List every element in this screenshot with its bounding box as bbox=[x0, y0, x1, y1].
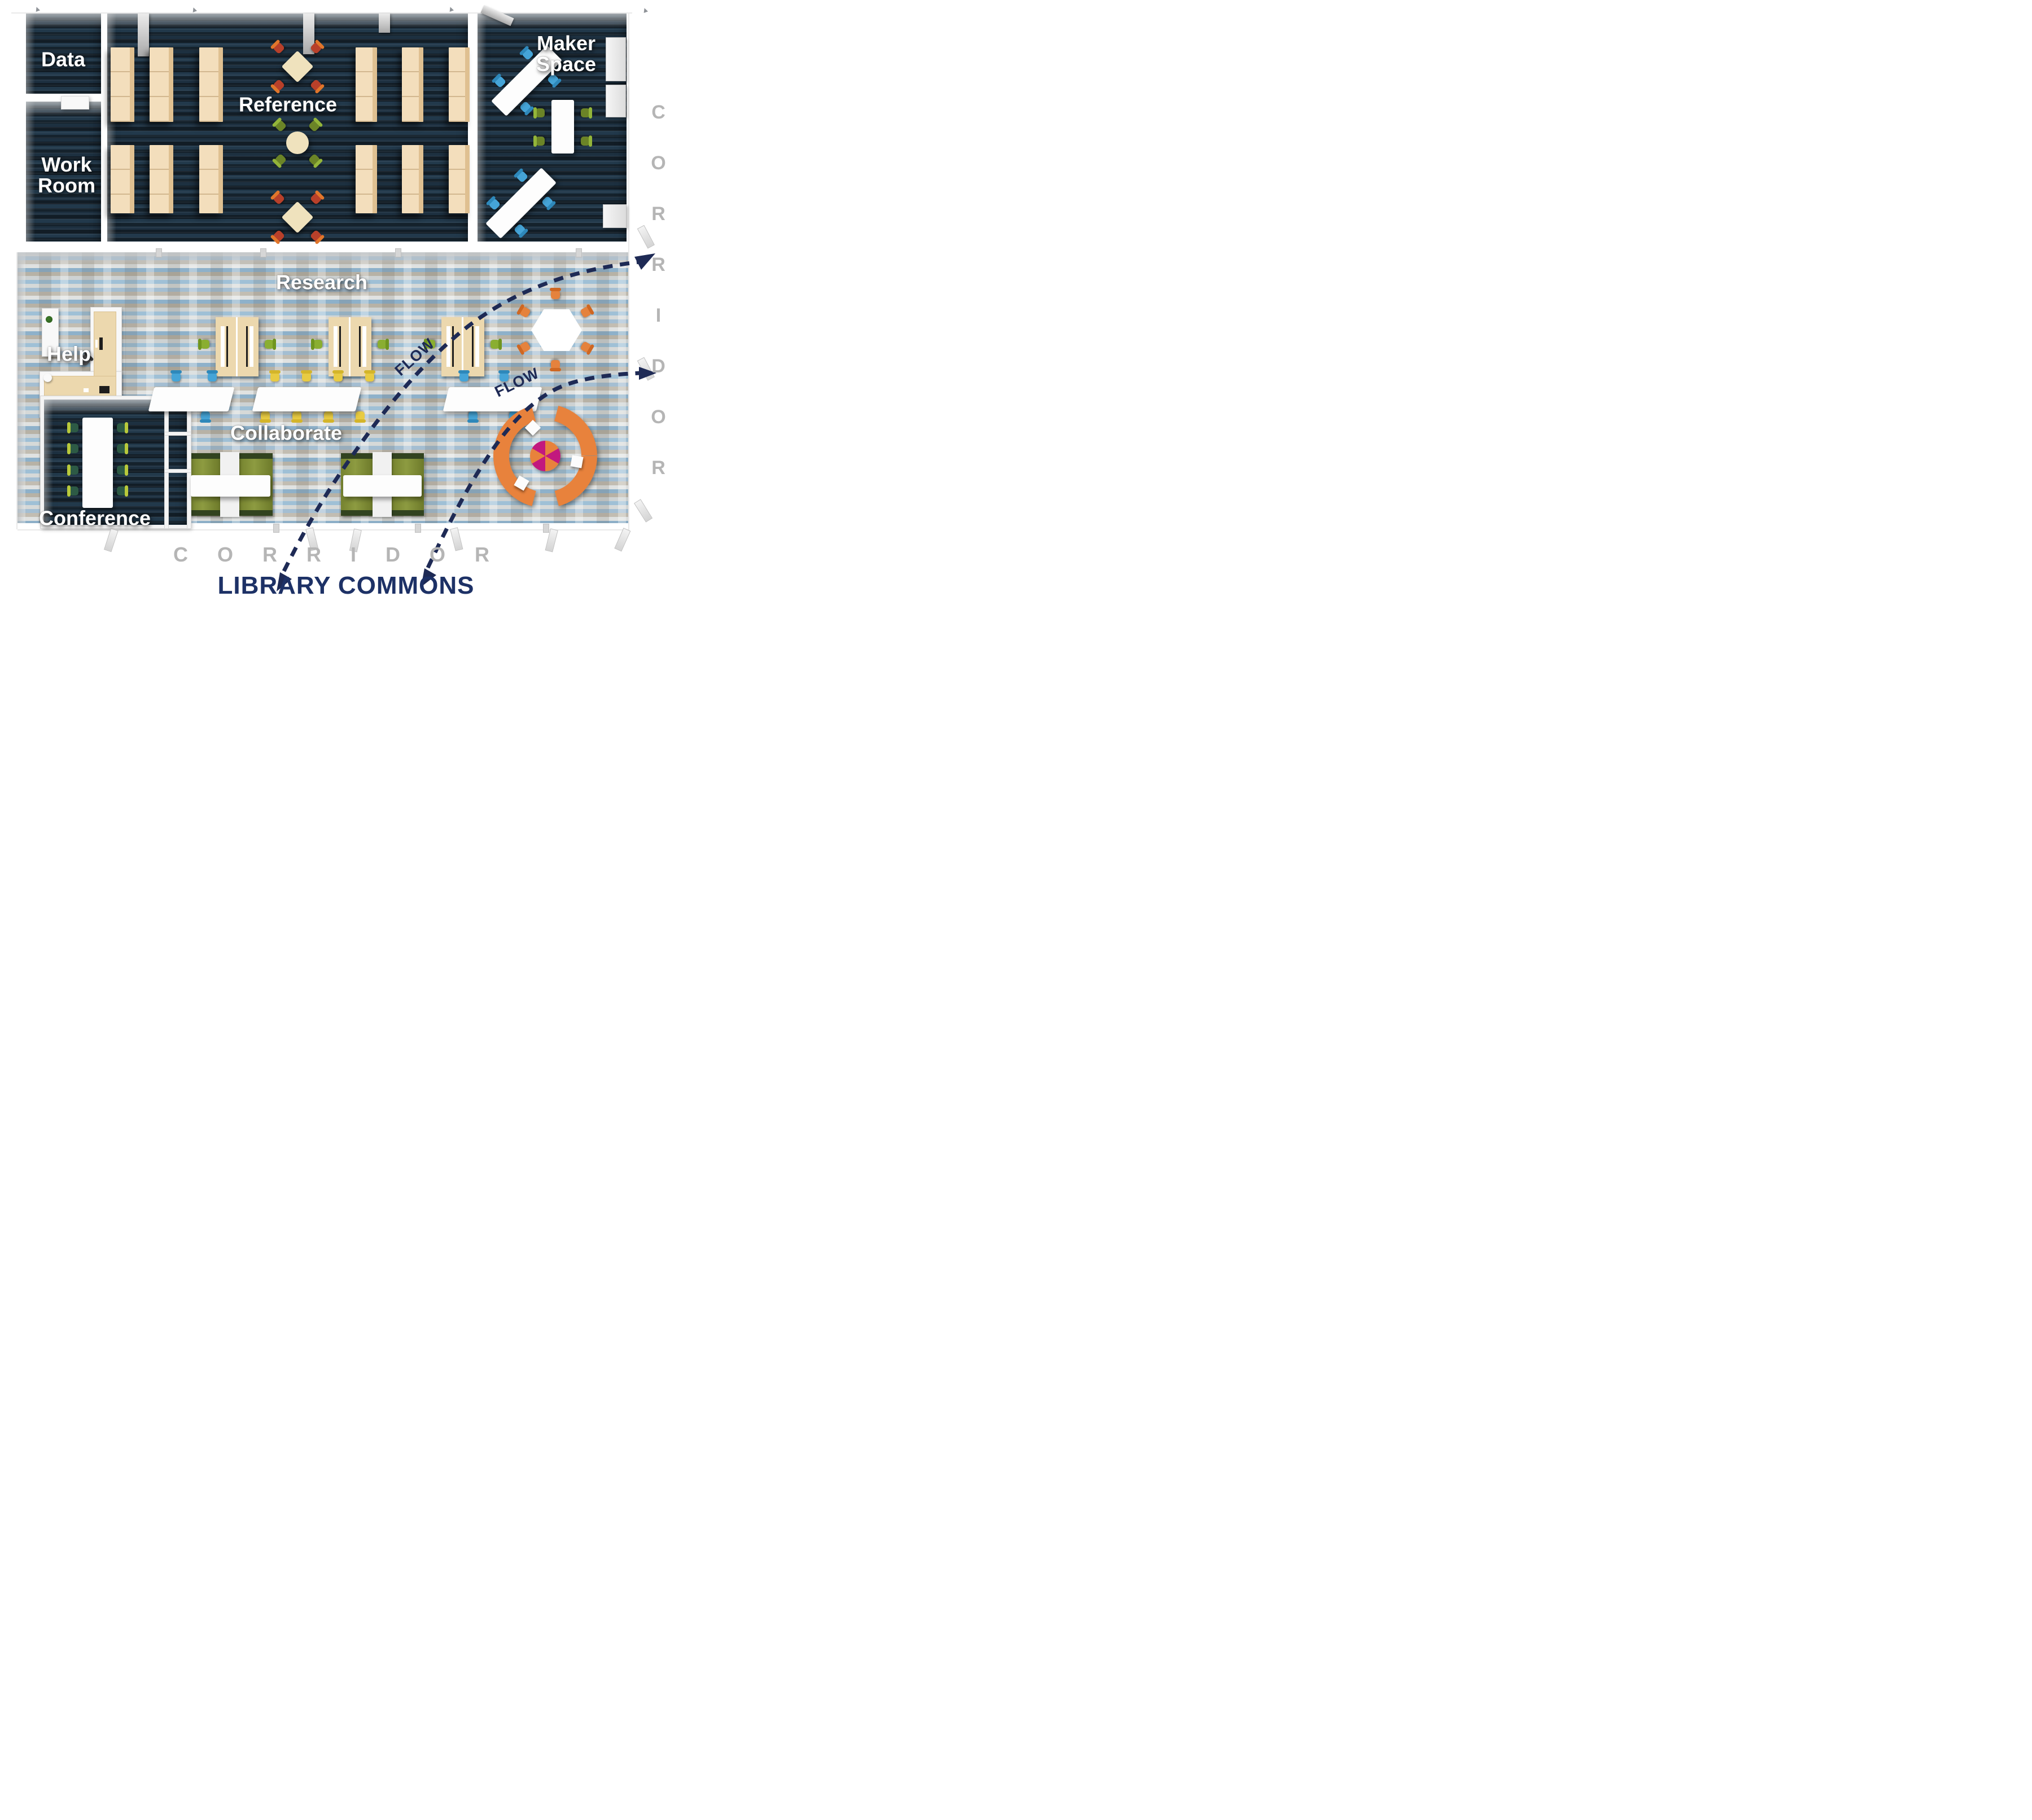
bookshelf bbox=[356, 145, 377, 213]
door-post bbox=[576, 248, 582, 257]
conference-glass-mullion bbox=[165, 396, 168, 528]
chair bbox=[302, 372, 311, 381]
chair bbox=[581, 137, 590, 146]
table bbox=[286, 131, 309, 154]
bookshelf bbox=[449, 145, 470, 213]
maker-equipment bbox=[606, 85, 626, 117]
research-desk bbox=[329, 317, 371, 376]
door-post bbox=[415, 524, 421, 533]
chair bbox=[313, 340, 322, 349]
bookshelf bbox=[356, 47, 377, 122]
plan-title: LIBRARY COMMONS bbox=[218, 572, 475, 600]
table bbox=[252, 387, 362, 411]
conference-glass-mullion bbox=[165, 470, 191, 472]
area-label-collaborate: Collaborate bbox=[230, 422, 342, 443]
chair bbox=[172, 372, 181, 381]
chair bbox=[551, 290, 560, 299]
door-post bbox=[395, 248, 401, 257]
paper-icon bbox=[84, 388, 89, 392]
chair bbox=[365, 372, 374, 381]
door-swing-icon bbox=[191, 7, 197, 12]
chair bbox=[551, 360, 560, 369]
booth-table bbox=[191, 475, 270, 497]
door-post bbox=[156, 248, 162, 257]
wall-stub bbox=[379, 14, 390, 33]
research-desk bbox=[441, 317, 484, 376]
door-post bbox=[260, 248, 266, 257]
chair bbox=[491, 340, 500, 349]
chair bbox=[468, 411, 478, 420]
chair bbox=[378, 340, 387, 349]
booth-table bbox=[343, 475, 422, 497]
conference-glass-mullion bbox=[165, 432, 191, 435]
bookshelf bbox=[111, 145, 134, 213]
chair bbox=[208, 372, 217, 381]
printer-icon bbox=[99, 386, 110, 393]
chair bbox=[201, 411, 210, 420]
chair bbox=[69, 423, 78, 432]
door-leaf bbox=[104, 528, 119, 552]
chair bbox=[509, 411, 518, 420]
area-label-maker-space: Maker Space bbox=[536, 33, 596, 74]
bookshelf bbox=[150, 145, 173, 213]
bookshelf bbox=[111, 47, 134, 122]
chair bbox=[270, 372, 279, 381]
chair bbox=[536, 137, 545, 146]
bookshelf bbox=[402, 47, 423, 122]
chair bbox=[459, 372, 468, 381]
bookshelf bbox=[199, 47, 223, 122]
area-label-conference: Conference bbox=[39, 507, 151, 528]
door-swing-icon bbox=[642, 7, 648, 13]
ottoman bbox=[530, 441, 560, 471]
keyboard-icon bbox=[95, 340, 98, 348]
chair bbox=[200, 340, 209, 349]
wall-edge bbox=[628, 14, 629, 530]
table bbox=[148, 387, 235, 411]
chair bbox=[69, 486, 78, 495]
conference-glass-mullion bbox=[187, 396, 191, 528]
door-swing-icon bbox=[448, 6, 454, 12]
chair bbox=[261, 411, 270, 420]
maker-equipment bbox=[603, 204, 627, 228]
bookshelf bbox=[449, 47, 470, 122]
work-room-door bbox=[61, 96, 89, 109]
wall-edge bbox=[11, 12, 632, 14]
corridor-label-bottom: CORRIDOR bbox=[173, 543, 519, 567]
library-commons-floor-plan: Data Work Room Reference Maker Space Res… bbox=[0, 0, 677, 607]
door-leaf bbox=[614, 528, 630, 551]
chair bbox=[69, 444, 78, 453]
area-label-reference: Reference bbox=[239, 94, 337, 115]
maker-equipment bbox=[606, 37, 626, 81]
chair bbox=[117, 444, 126, 453]
area-label-work-room: Work Room bbox=[38, 154, 95, 196]
chair bbox=[292, 411, 301, 420]
bookshelf bbox=[150, 47, 173, 122]
research-desk bbox=[216, 317, 259, 376]
area-label-research: Research bbox=[276, 271, 367, 292]
area-label-data: Data bbox=[41, 49, 85, 69]
chair bbox=[334, 372, 343, 381]
monitor-icon bbox=[99, 337, 103, 350]
corridor-label-right: CORRIDOR bbox=[647, 102, 669, 508]
chair bbox=[581, 108, 590, 117]
table bbox=[551, 100, 574, 154]
door-post bbox=[543, 524, 549, 533]
door-post bbox=[273, 524, 279, 533]
stool bbox=[43, 374, 52, 382]
chair bbox=[536, 108, 545, 117]
chair bbox=[356, 411, 365, 420]
chair bbox=[69, 466, 78, 475]
plant-icon bbox=[46, 316, 52, 323]
chair bbox=[265, 340, 274, 349]
area-label-help: Help bbox=[47, 343, 91, 364]
door-swing-icon bbox=[34, 6, 40, 12]
chair bbox=[117, 466, 126, 475]
table bbox=[443, 387, 542, 411]
bookshelf bbox=[402, 145, 423, 213]
chair bbox=[117, 423, 126, 432]
side-table bbox=[570, 455, 583, 468]
chair bbox=[324, 411, 333, 420]
chair bbox=[117, 486, 126, 495]
wall-edge bbox=[16, 252, 17, 529]
bookshelf bbox=[199, 145, 223, 213]
conference-table bbox=[82, 418, 113, 508]
wall-stub bbox=[138, 14, 149, 56]
